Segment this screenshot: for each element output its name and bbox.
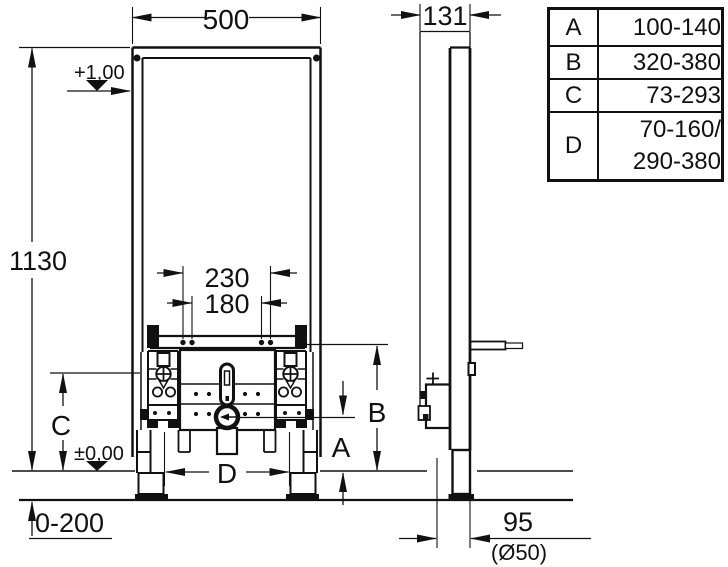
- crossbar: [150, 336, 305, 348]
- screw-icon: [427, 373, 440, 385]
- fixing-bolt-icon: [189, 340, 194, 345]
- technical-drawing-page: 500 131 1130 +1,00 ±0,00 230 180 C B A D…: [0, 0, 728, 567]
- table-value-a: 100-140: [598, 9, 723, 47]
- dim-outlet-wall-distance: 95: [503, 507, 533, 537]
- wall-anchor-rod: [471, 342, 506, 350]
- corner-screw-icon: [134, 55, 141, 62]
- outlet-pipe: [217, 428, 237, 454]
- table-value-d-line2: 290-380: [599, 146, 721, 178]
- fixing-bolt-icon: [268, 340, 273, 345]
- level-top-label: +1,00: [74, 62, 125, 84]
- side-foot: [453, 450, 471, 494]
- dim-anchor-spacing-inner: 180: [204, 289, 249, 319]
- table-value-b: 320-380: [598, 46, 723, 79]
- adjustment-range-table: A 100-140 B 320-380 C 73-293 D 70-160/ 2…: [547, 7, 724, 182]
- table-row: D 70-160/ 290-380: [549, 112, 723, 181]
- dim-label-d: D: [217, 458, 237, 489]
- dimension-annotations: [19, 4, 591, 548]
- table-key-c: C: [549, 79, 599, 112]
- dim-label-b: B: [368, 397, 387, 428]
- dim-label-a: A: [332, 432, 351, 463]
- dim-frame-depth: 131: [422, 1, 467, 31]
- table-value-d: 70-160/ 290-380: [598, 112, 723, 181]
- table-row: B 320-380: [549, 46, 723, 79]
- table-key-a: A: [549, 9, 599, 47]
- table-row: C 73-293: [549, 79, 723, 112]
- mounting-plate: [180, 350, 275, 454]
- side-view: [419, 32, 523, 502]
- dim-frame-width: 500: [203, 4, 250, 35]
- table-row: A 100-140: [549, 9, 723, 47]
- fixing-bolt-icon: [259, 340, 264, 345]
- table-key-b: B: [549, 46, 599, 79]
- dim-floor-buildup: 0-200: [35, 508, 104, 538]
- table-key-d: D: [549, 112, 599, 181]
- dim-label-c: C: [51, 410, 71, 441]
- table-value-d-line1: 70-160/: [599, 114, 721, 146]
- dim-frame-height: 1130: [9, 246, 67, 276]
- dim-outlet-pipe-diameter: (Ø50): [491, 540, 547, 565]
- fixing-bolt-icon: [180, 340, 185, 345]
- table-value-c: 73-293: [598, 79, 723, 112]
- level-floor-label: ±0,00: [74, 443, 124, 465]
- corner-screw-icon: [313, 55, 320, 62]
